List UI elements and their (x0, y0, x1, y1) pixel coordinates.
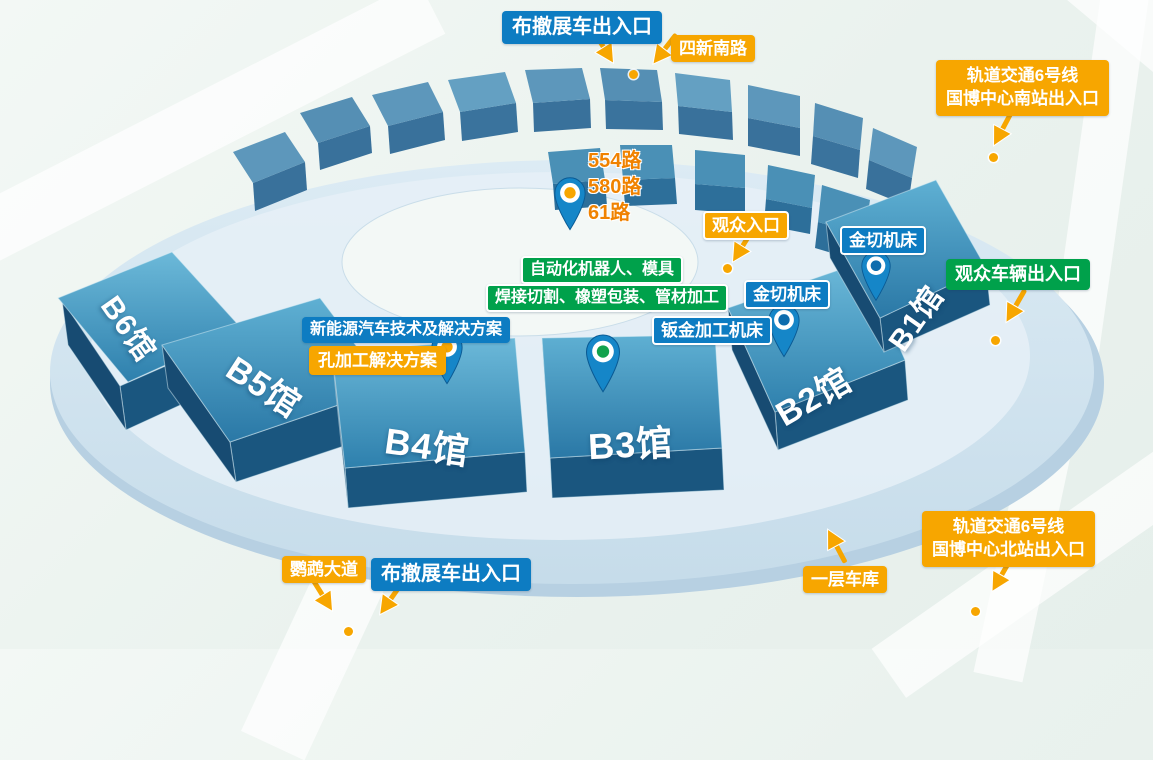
bus-routes-list: 554路 580路 61路 (588, 148, 641, 226)
label-sixin-south-road: 四新南路 (671, 35, 755, 62)
label-hole-processing: 孔加工解决方案 (309, 346, 446, 375)
vehicle-exit-dot (991, 336, 1000, 345)
label-yingwu-avenue: 鹦鹉大道 (282, 556, 366, 583)
label-welding-packaging-pipe: 焊接切割、橡塑包装、管材加工 (486, 284, 728, 312)
welding-area-pin (584, 334, 622, 400)
bus-stop-pin (553, 176, 587, 238)
hall-label-b3: B3馆 (587, 414, 675, 470)
label-truck-entrance-bottom: 布撤展车出入口 (371, 558, 531, 591)
label-metro-north-station: 轨道交通6号线 国博中心北站出入口 (922, 511, 1095, 567)
label-metro-south-station: 轨道交通6号线 国博中心南站出入口 (936, 60, 1109, 116)
label-nev-solutions: 新能源汽车技术及解决方案 (302, 317, 510, 343)
metal-cutting-b1-pin (860, 250, 892, 308)
metro-south-line1: 轨道交通6号线 (946, 65, 1099, 88)
metro-north-line1: 轨道交通6号线 (932, 516, 1085, 539)
label-sheet-metal-machines: 钣金加工机床 (652, 316, 772, 345)
bus-route-580: 580路 (588, 174, 641, 200)
metro-south-dot (989, 153, 998, 162)
metal-cutting-b2-pin (767, 303, 801, 365)
metro-north-dot (971, 607, 980, 616)
label-visitor-vehicle-exit: 观众车辆出入口 (946, 259, 1090, 290)
label-automation-molds: 自动化机器人、模具 (521, 256, 683, 284)
metro-south-line2: 国博中心南站出入口 (946, 88, 1099, 111)
yingwu-dot (344, 627, 353, 636)
metro-north-line2: 国博中心北站出入口 (932, 539, 1085, 562)
label-truck-entrance-top: 布撤展车出入口 (502, 11, 662, 44)
visitor-entrance-dot (723, 264, 732, 273)
label-metal-cutting-b2: 金切机床 (744, 280, 830, 309)
entrance-dot-top (629, 70, 638, 79)
label-visitor-entrance: 观众入口 (703, 211, 789, 240)
label-garage-level1: 一层车库 (803, 566, 887, 593)
label-metal-cutting-b1: 金切机床 (840, 226, 926, 255)
bus-route-554: 554路 (588, 148, 641, 174)
bus-route-61: 61路 (588, 200, 641, 226)
